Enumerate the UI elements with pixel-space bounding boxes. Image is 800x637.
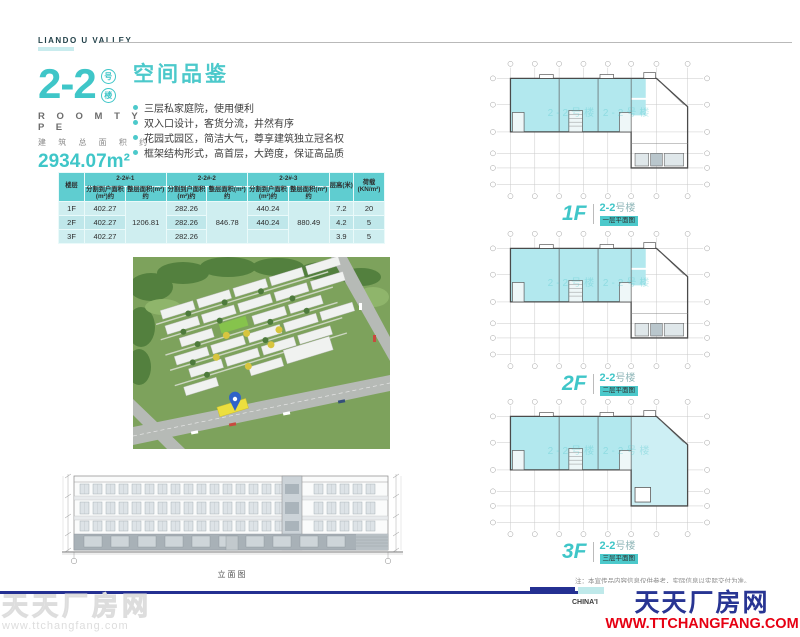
cell-split: 402.27 (85, 215, 126, 229)
brand-name: LIANDO U VALLEY (38, 36, 132, 45)
cell-floor: 1F (59, 201, 85, 215)
elevation-drawing (60, 464, 405, 568)
floor-plan-2f-label: 2F 2-2号楼 二层平面图 (480, 372, 720, 396)
bullet-dot-icon (133, 135, 138, 140)
col-header-height: 层高(米) (329, 173, 353, 202)
badge-hao: 号 (101, 69, 116, 84)
highlight-text: 双入口设计，客货分流，井然有序 (144, 115, 294, 130)
cell-height: 4.2 (329, 215, 353, 229)
aerial-rendering-image (133, 257, 390, 449)
footer-teal-bar (578, 587, 605, 594)
col-header-split: 分割到户面积(m²)约 (85, 187, 126, 202)
label-divider (593, 374, 594, 394)
elevation-caption: 立面图 (60, 569, 405, 580)
floor-plan-2f: 2-2号楼 2-2号楼 2F 2-2号楼 二层平面图 (480, 226, 720, 396)
bullet-dot-icon (133, 150, 138, 155)
list-item: 花园式园区，简洁大气，尊享建筑独立冠名权 (133, 130, 423, 145)
cell-floor: 3F (59, 229, 85, 243)
col-header-split: 分割到户面积(m²)约 (248, 187, 289, 202)
cell-height: 7.2 (329, 201, 353, 215)
cell-split: 282.26 (166, 215, 207, 229)
aerial-rendering-drawing (133, 257, 390, 449)
cell-split: 402.27 (85, 201, 126, 215)
list-item: 双入口设计，客货分流，井然有序 (133, 115, 423, 130)
cell-split: 440.24 (248, 215, 289, 229)
watermark-name: 天天厂房网 (2, 592, 152, 620)
col-header-whole: 整层面积(m²)约 (125, 187, 166, 202)
brochure-page: LIANDO U VALLEY 2-2 号 楼 R O O M T Y P E … (0, 0, 800, 637)
site-url: WWW.TTCHANGFANG.COM (604, 616, 800, 632)
col-group-unit3: 2-2#-3 (248, 173, 330, 187)
plan-floor-tag: 2F (562, 372, 587, 396)
floor-plan-3f-label: 3F 2-2号楼 三层平面图 (480, 540, 720, 564)
col-header-whole: 整层面积(m²)约 (207, 187, 248, 202)
unit-number: 2-2 (38, 64, 96, 104)
cell-split (248, 229, 289, 243)
plan-building-suffix: 号楼 (615, 373, 635, 384)
cell-split: 282.26 (166, 201, 207, 215)
cell-split: 402.27 (85, 229, 126, 243)
plan-building-number: 2-2 (600, 372, 616, 384)
highlight-text: 花园式园区，简洁大气，尊享建筑独立冠名权 (144, 130, 344, 145)
highlight-text: 三层私家庭院，使用便利 (144, 100, 254, 115)
cell-load: 20 (354, 201, 385, 215)
table-row: 1F 402.27 1206.81 282.26 846.78 440.24 8… (59, 201, 385, 215)
unit-badges: 号 楼 (101, 69, 116, 103)
floor-plan-1f-label: 1F 2-2号楼 一层平面图 (480, 202, 720, 226)
label-divider (593, 542, 594, 562)
col-header-split: 分割到户面积(m²)约 (166, 187, 207, 202)
site-name: 天天厂房网 (604, 590, 800, 616)
site-brand-box: 天天厂房网 WWW.TTCHANGFANG.COM (604, 583, 800, 637)
floor-plan-3f-drawing (480, 394, 720, 540)
plan-building-suffix: 号楼 (615, 541, 635, 552)
plan-building-number: 2-2 (600, 202, 616, 214)
footer-partial-text: CHINA'I (572, 599, 598, 606)
cell-whole: 846.78 (207, 201, 248, 243)
highlights-section: 空间品鉴 三层私家庭院，使用便利 双入口设计，客货分流，井然有序 花园式园区，简… (133, 58, 423, 160)
elevation-svg (60, 464, 405, 568)
list-item: 三层私家庭院，使用便利 (133, 100, 423, 115)
plan-floor-tag: 1F (562, 202, 587, 226)
floor-plan-1f-drawing (480, 56, 720, 202)
floor-plan-1f: 2-2号楼 2-2号楼 1F 2-2号楼 一层平面图 (480, 56, 720, 226)
col-header-load: 荷载(KN/m²) (354, 173, 385, 202)
label-divider (593, 204, 594, 224)
col-header-whole: 整层面积(m²)约 (288, 187, 329, 202)
area-spec-table: 楼层 2-2#-1 2-2#-2 2-2#-3 层高(米) 荷载(KN/m²) … (58, 172, 385, 244)
header-rule (100, 42, 792, 43)
floor-plan-3f: 2-2号楼 2-2号楼 3F 2-2号楼 三层平面图 (480, 394, 720, 564)
cell-load: 5 (354, 215, 385, 229)
cell-load: 5 (354, 229, 385, 243)
col-group-unit2: 2-2#-2 (166, 173, 248, 187)
footer-navy-bar (530, 587, 575, 594)
plan-caption: 一层平面图 (600, 216, 639, 226)
floor-plan-2f-drawing (480, 226, 720, 372)
cell-height: 3.9 (329, 229, 353, 243)
plan-building-suffix: 号楼 (615, 203, 635, 214)
cell-floor: 2F (59, 215, 85, 229)
cell-split: 440.24 (248, 201, 289, 215)
highlight-text: 框架结构形式，高首层，大跨度，保证高品质 (144, 145, 344, 160)
watermark-url: www.ttchangfang.com (2, 620, 152, 632)
brand-accent-bar (38, 47, 74, 51)
plan-caption: 三层平面图 (600, 554, 639, 564)
bullet-dot-icon (133, 105, 138, 110)
plan-building-number: 2-2 (600, 540, 616, 552)
col-group-unit1: 2-2#-1 (85, 173, 167, 187)
col-header-floor: 楼层 (59, 173, 85, 202)
cell-split: 282.26 (166, 229, 207, 243)
bullet-dot-icon (133, 120, 138, 125)
site-watermark: 天天厂房网 www.ttchangfang.com (2, 592, 152, 632)
badge-lou: 楼 (101, 88, 116, 103)
highlights-title: 空间品鉴 (133, 58, 423, 88)
list-item: 框架结构形式，高首层，大跨度，保证高品质 (133, 145, 423, 160)
cell-whole: 1206.81 (125, 201, 166, 243)
plan-floor-tag: 3F (562, 540, 587, 564)
cell-whole: 880.49 (288, 201, 329, 243)
highlights-list: 三层私家庭院，使用便利 双入口设计，客货分流，井然有序 花园式园区，简洁大气，尊… (133, 100, 423, 160)
